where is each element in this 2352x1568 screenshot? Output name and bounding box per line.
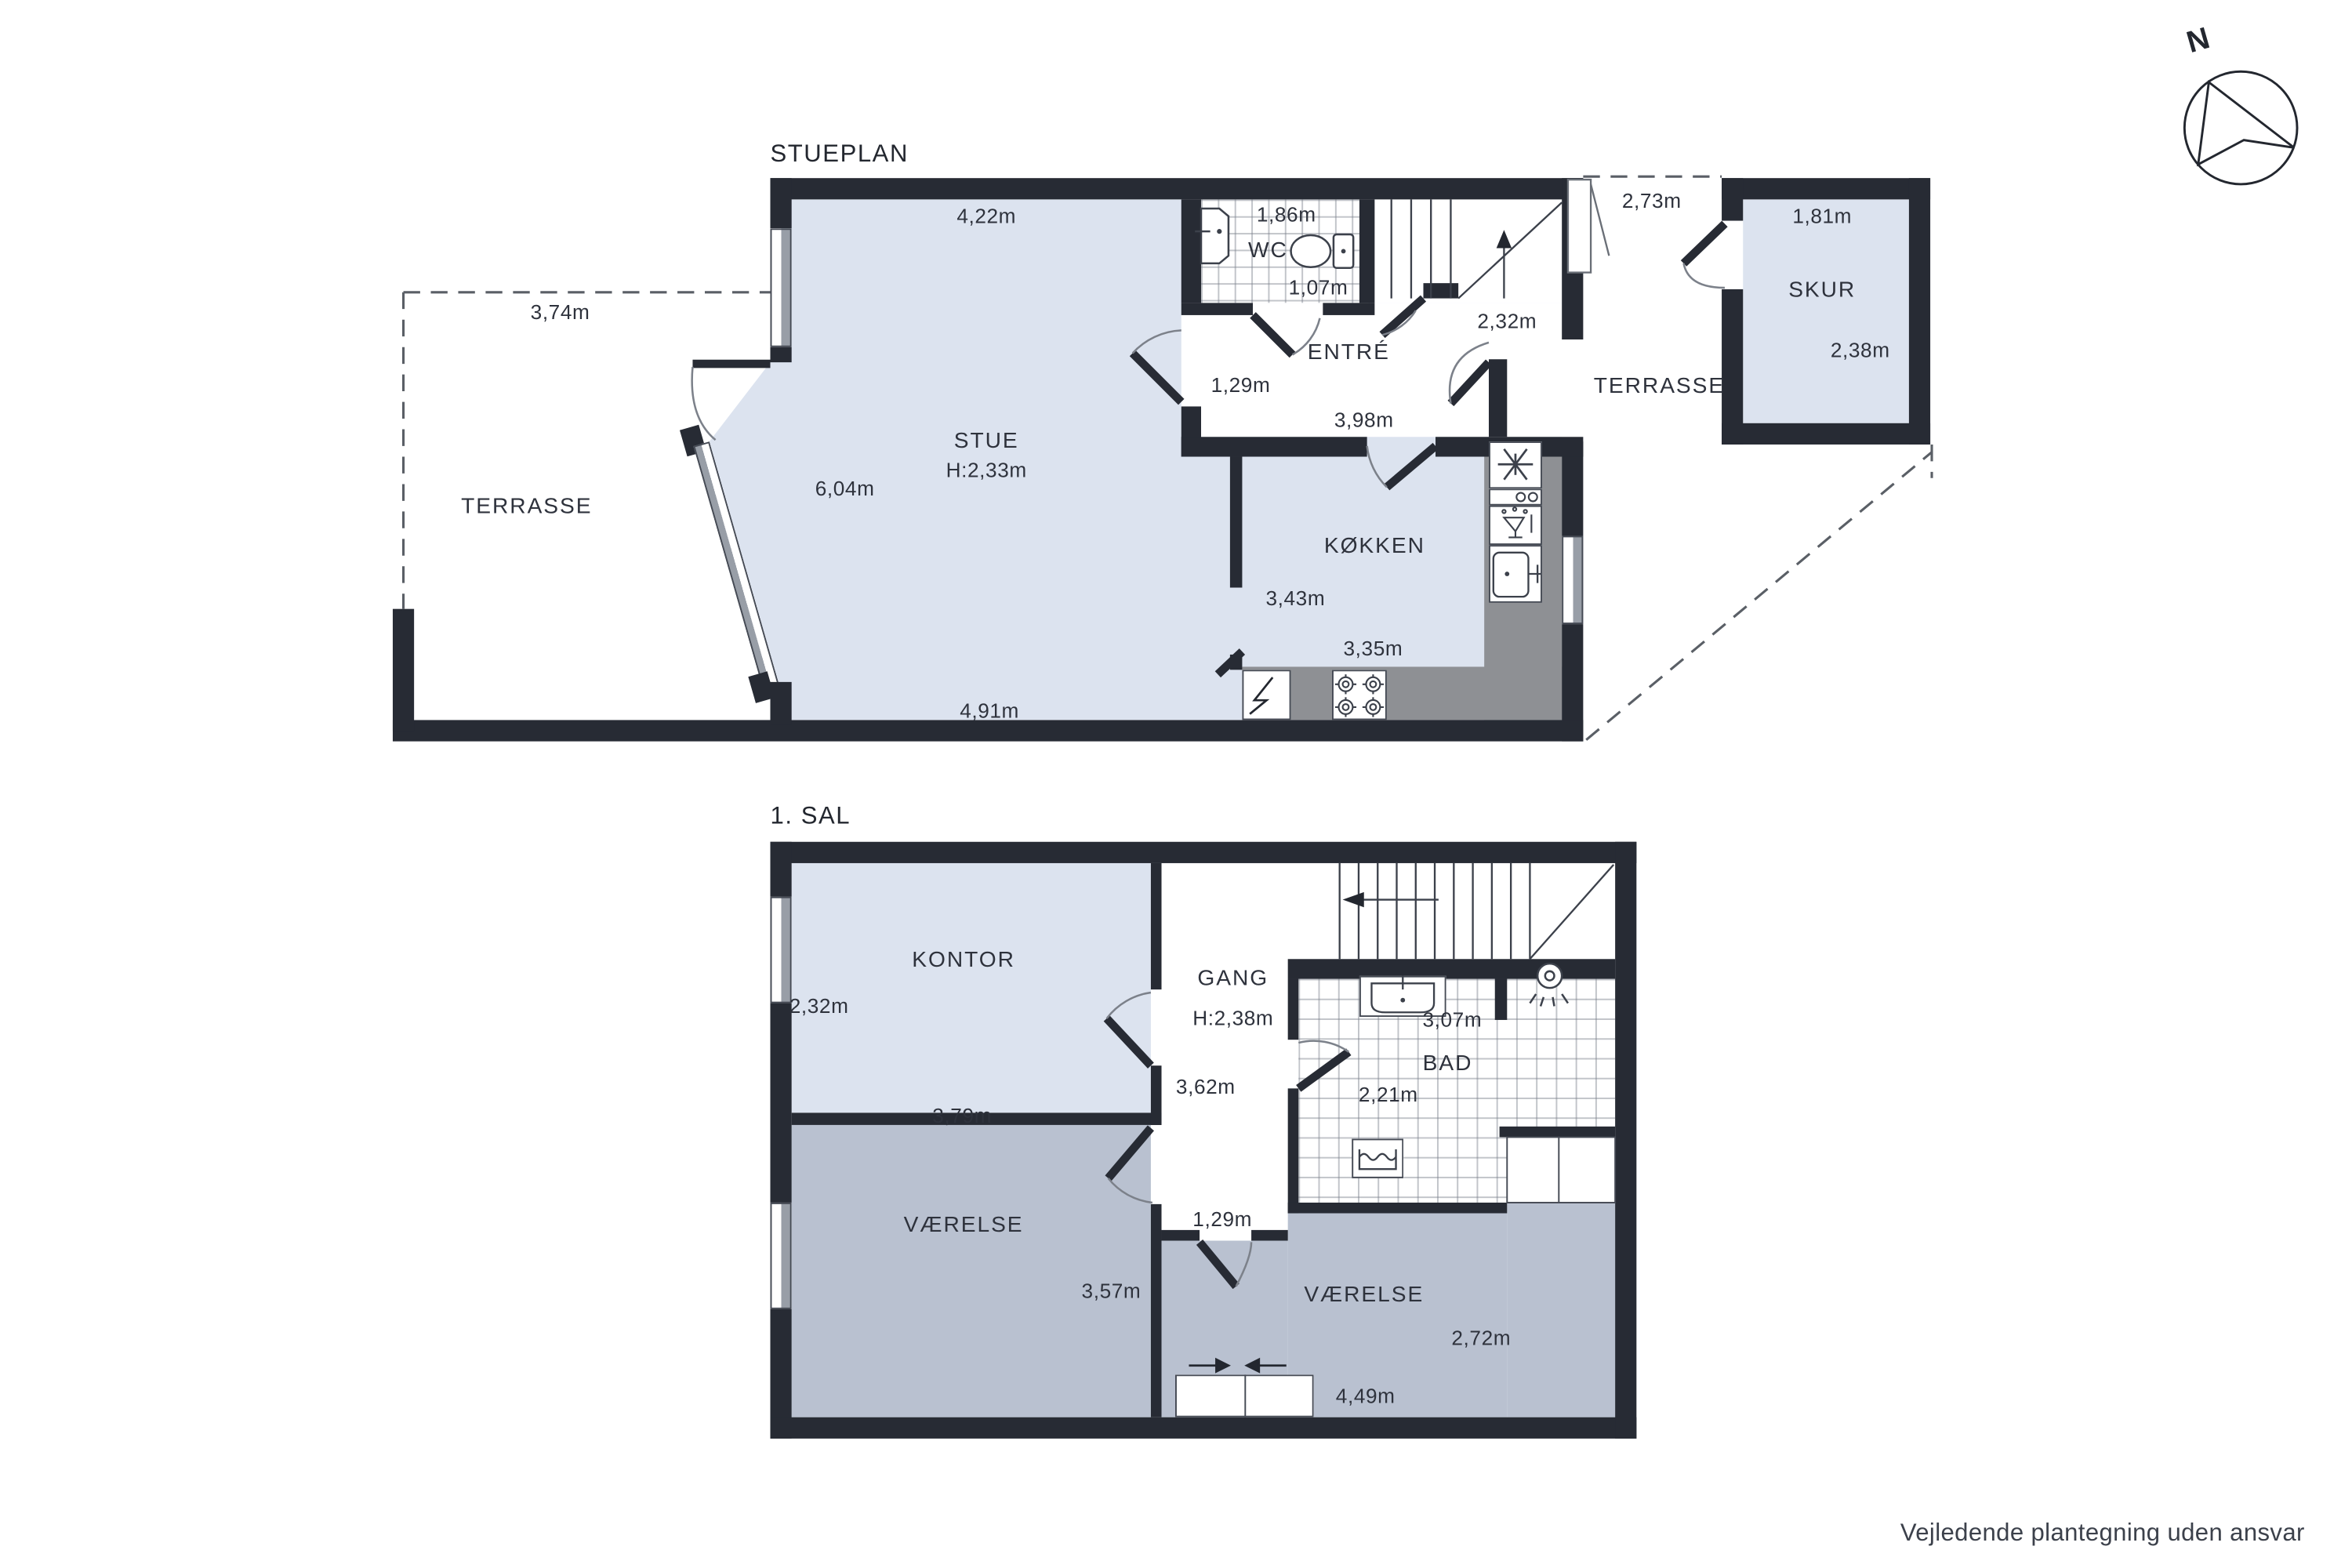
dim-gang-1: 3,62m xyxy=(1176,1076,1236,1098)
dim-vaerelse-b-1: 2,72m xyxy=(1451,1327,1511,1349)
window-stue-left xyxy=(771,228,792,347)
wall xyxy=(1162,1230,1200,1241)
room-wc: WC xyxy=(1248,239,1288,263)
dim-stue-ceiling: H:2,33m xyxy=(946,459,1027,481)
fridge-box xyxy=(1489,441,1542,488)
dim-entre-1: 1,29m xyxy=(1211,374,1271,397)
wall xyxy=(1288,1088,1299,1213)
dishwasher-box xyxy=(1489,506,1542,545)
wall xyxy=(1615,842,1636,1439)
compass-north-label: N xyxy=(2183,22,2214,62)
dim-bad-1: 3,07m xyxy=(1422,1008,1482,1031)
dim-terrasse-right: 2,73m xyxy=(1622,190,1682,212)
wall xyxy=(1722,289,1743,445)
wall xyxy=(771,842,792,897)
wall xyxy=(1181,199,1201,303)
wall xyxy=(1288,979,1299,1040)
room-gang: GANG xyxy=(1197,967,1269,991)
compass-icon xyxy=(2184,71,2297,184)
dim-skur-width: 1,81m xyxy=(1792,205,1852,227)
dim-kontor: 2,32m xyxy=(789,995,849,1018)
dim-kokken-1: 3,43m xyxy=(1265,587,1325,610)
dim-vaerelse-b-2: 4,49m xyxy=(1336,1385,1396,1407)
dim-wc-depth: 1,07m xyxy=(1289,276,1348,299)
wall xyxy=(771,347,792,362)
wall xyxy=(771,842,1637,863)
wall xyxy=(1359,199,1374,303)
dim-gang-ceiling: H:2,38m xyxy=(1192,1007,1273,1029)
wall xyxy=(771,178,1584,199)
wall xyxy=(1500,1127,1616,1138)
stairs-area-ground xyxy=(1370,199,1584,303)
room-kontor: KONTOR xyxy=(912,949,1015,973)
room-terrasse-right: TERRASSE xyxy=(1594,375,1725,399)
bad-stub-wall xyxy=(1495,979,1508,1020)
wall xyxy=(1722,178,1930,199)
window-vaerelse-left xyxy=(771,1203,792,1309)
dim-stue-bottom: 4,91m xyxy=(960,699,1019,722)
dim-terrasse-left: 3,74m xyxy=(531,300,590,323)
room-terrasse-left: TERRASSE xyxy=(461,495,592,519)
dim-entre-door: 2,32m xyxy=(1477,310,1537,332)
wall xyxy=(1909,178,1930,445)
skur-fill xyxy=(1743,199,1909,423)
wall xyxy=(1288,1203,1508,1214)
wall xyxy=(393,720,1583,741)
dim-wc-width: 1,86m xyxy=(1257,203,1316,226)
vaerelse-a-fill xyxy=(792,1125,1151,1417)
wall xyxy=(1230,655,1243,670)
wall xyxy=(1181,303,1253,315)
window-kokken-right xyxy=(1562,535,1583,624)
dim-stue-depth: 6,04m xyxy=(815,477,875,500)
oven-box xyxy=(1489,488,1542,505)
electrical-box xyxy=(1242,670,1290,720)
dim-entre-2: 3,98m xyxy=(1334,408,1394,431)
wall xyxy=(771,178,792,228)
kontor-fill xyxy=(792,863,1151,1112)
stair-stub-wall xyxy=(1423,283,1458,298)
wall xyxy=(1151,863,1162,989)
disclaimer-text: Vejledende plantegning uden ansvar xyxy=(1900,1521,2305,1548)
wall xyxy=(771,1417,1637,1439)
wall xyxy=(1151,1065,1162,1125)
wall xyxy=(1251,1230,1288,1241)
stove-box xyxy=(1332,670,1387,720)
wall xyxy=(1151,1204,1162,1417)
floor-plan: STUEPLAN 1. SAL 4,22m 1,86m WC 1,07m 2,7… xyxy=(0,0,2352,1568)
first-floor-title: 1. SAL xyxy=(771,804,851,831)
stair-down-arrow xyxy=(1343,892,1364,907)
stair-bottom-wall xyxy=(1288,959,1615,978)
dim-gang-door: 1,29m xyxy=(1192,1208,1252,1231)
dim-vaerelse-a-2: 3,57m xyxy=(1082,1279,1142,1302)
sink-box xyxy=(1489,545,1542,603)
wall xyxy=(771,1004,792,1203)
wall xyxy=(1230,457,1243,588)
dim-kokken-2: 3,35m xyxy=(1344,637,1403,660)
room-stue: STUE xyxy=(954,430,1019,454)
dim-stue-top: 4,22m xyxy=(956,205,1016,227)
wall xyxy=(1722,423,1930,445)
room-vaerelse-a: VÆRELSE xyxy=(904,1214,1024,1238)
wall xyxy=(771,682,792,724)
terrace-side-wall xyxy=(393,609,414,731)
wardrobe xyxy=(1175,1374,1314,1417)
room-kokken: KØKKEN xyxy=(1324,535,1425,559)
ground-floor-title: STUEPLAN xyxy=(771,142,909,169)
room-vaerelse-b: VÆRELSE xyxy=(1304,1283,1424,1308)
vaerelse-b-fill xyxy=(1288,1214,1508,1417)
window-kontor-left xyxy=(771,897,792,1004)
room-entre: ENTRÉ xyxy=(1308,341,1390,365)
wall xyxy=(1181,437,1367,456)
dim-bad-2: 2,21m xyxy=(1359,1083,1418,1106)
wall xyxy=(1722,178,1743,220)
entre-door-stub xyxy=(1489,359,1507,437)
dim-skur-depth: 2,38m xyxy=(1831,339,1890,361)
wall xyxy=(1323,303,1374,315)
washing-machine-box xyxy=(1352,1138,1403,1178)
closet-bad xyxy=(1507,1137,1615,1202)
room-skur: SKUR xyxy=(1788,278,1856,303)
staircase-first xyxy=(1340,863,1614,959)
wall xyxy=(1562,178,1583,339)
room-bad: BAD xyxy=(1423,1052,1473,1076)
dim-vaerelse-a-1: 3,79m xyxy=(932,1105,992,1127)
